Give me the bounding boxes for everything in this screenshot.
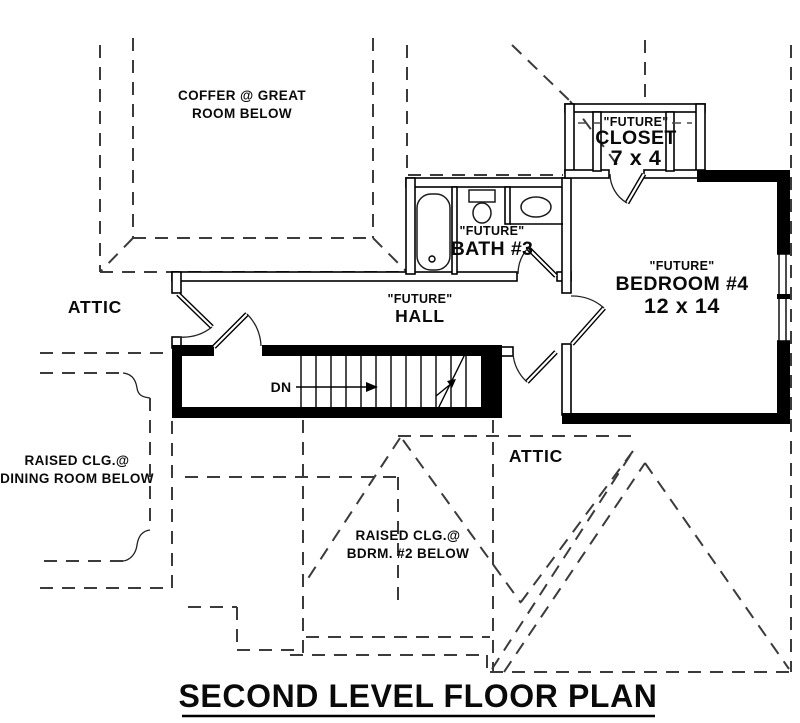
closet-bottom-wall-left bbox=[565, 170, 609, 178]
window-mullion bbox=[777, 294, 790, 299]
bedroom-door bbox=[571, 296, 604, 344]
coffer-label-line2: ROOM BELOW bbox=[192, 106, 292, 121]
bdrm2-label-line2: BDRM. #2 BELOW bbox=[347, 546, 470, 561]
floor-plan-sheet: COFFER @ GREAT ROOM BELOW ATTIC ATTIC "F… bbox=[0, 0, 800, 723]
bedroom-left-wall-upper bbox=[562, 178, 571, 293]
bedroom-bottom-wall bbox=[562, 413, 790, 424]
bedroom-dims-label: 12 x 14 bbox=[644, 294, 720, 318]
sheet-title: SECOND LEVEL FLOOR PLAN bbox=[178, 678, 657, 714]
hall-label: HALL bbox=[395, 306, 445, 326]
stair-right-wall bbox=[481, 345, 502, 418]
closet-dims-label: 7 x 4 bbox=[611, 146, 662, 170]
bedroom-top-wall bbox=[697, 170, 790, 182]
closet-left-wall bbox=[565, 104, 574, 173]
dining-label-line1: RAISED CLG.@ bbox=[25, 453, 130, 468]
hall-top-wall-left bbox=[172, 272, 517, 281]
hall-left-wall-upper bbox=[172, 272, 181, 293]
ceiling-bracket-bottom bbox=[123, 530, 150, 561]
bedroom-right-wall-upper bbox=[777, 170, 790, 254]
toilet-bowl bbox=[473, 203, 491, 223]
stair-treads bbox=[301, 356, 466, 407]
bath-left-wall bbox=[406, 178, 415, 274]
hip-roof-dashed-lines bbox=[490, 451, 789, 672]
hall-lower-door bbox=[513, 352, 556, 382]
closet-right-wall bbox=[696, 104, 705, 173]
closet-door bbox=[610, 174, 644, 203]
closet-top-wall bbox=[565, 104, 705, 112]
staircase bbox=[296, 350, 467, 417]
attic-right-label: ATTIC bbox=[509, 446, 563, 466]
hall-future-label: "FUTURE" bbox=[388, 292, 453, 306]
bedroom-future-label: "FUTURE" bbox=[650, 259, 715, 273]
dn-arrow-upper-line bbox=[436, 383, 452, 396]
dining-label-line2: DINING ROOM BELOW bbox=[0, 471, 154, 486]
bath-top-wall bbox=[406, 178, 568, 187]
bath-future-label: "FUTURE" bbox=[460, 224, 525, 238]
bdrm2-label-line1: RAISED CLG.@ bbox=[356, 528, 461, 543]
stair-top-wall-right bbox=[262, 345, 497, 356]
bathtub bbox=[417, 194, 450, 270]
stair-door bbox=[214, 314, 261, 347]
bedroom-left-wall-lower bbox=[562, 344, 571, 415]
toilet-tank bbox=[469, 190, 495, 202]
dn-label: DN bbox=[271, 379, 292, 395]
second-level-floor-plan: COFFER @ GREAT ROOM BELOW ATTIC ATTIC "F… bbox=[0, 0, 800, 723]
ceiling-bracket-top bbox=[123, 373, 150, 398]
bedroom-right-wall-lower bbox=[777, 341, 790, 424]
vanity-divider-wall bbox=[505, 187, 510, 224]
tub-alcove-wall bbox=[452, 187, 457, 274]
bedroom-label: BEDROOM #4 bbox=[616, 273, 749, 295]
bath-label: BATH #3 bbox=[451, 238, 534, 260]
coffer-label-line1: COFFER @ GREAT bbox=[178, 88, 306, 103]
attic-access-door bbox=[178, 294, 212, 337]
sink bbox=[521, 197, 551, 217]
attic-left-label: ATTIC bbox=[68, 297, 122, 317]
bedroom-window bbox=[777, 254, 790, 341]
stair-bottom-wall bbox=[172, 407, 502, 418]
